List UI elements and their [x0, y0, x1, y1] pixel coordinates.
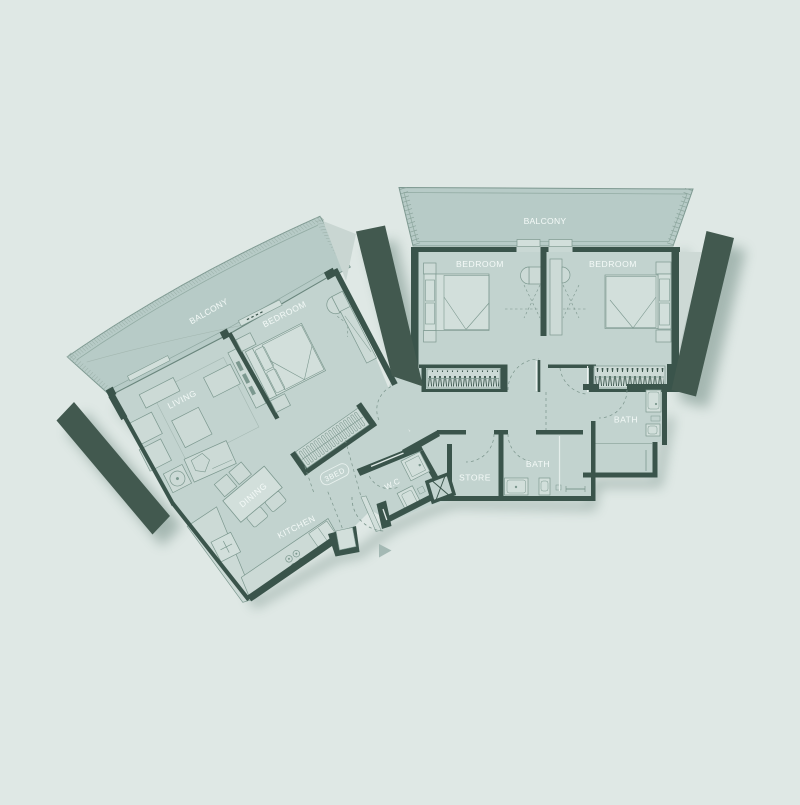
svg-text:BALCONY: BALCONY	[524, 216, 567, 226]
svg-text:BEDROOM: BEDROOM	[589, 259, 637, 269]
svg-text:BEDROOM: BEDROOM	[456, 259, 504, 269]
svg-text:STORE: STORE	[459, 473, 491, 483]
svg-text:BATH: BATH	[614, 415, 638, 425]
svg-text:BATH: BATH	[526, 459, 550, 469]
